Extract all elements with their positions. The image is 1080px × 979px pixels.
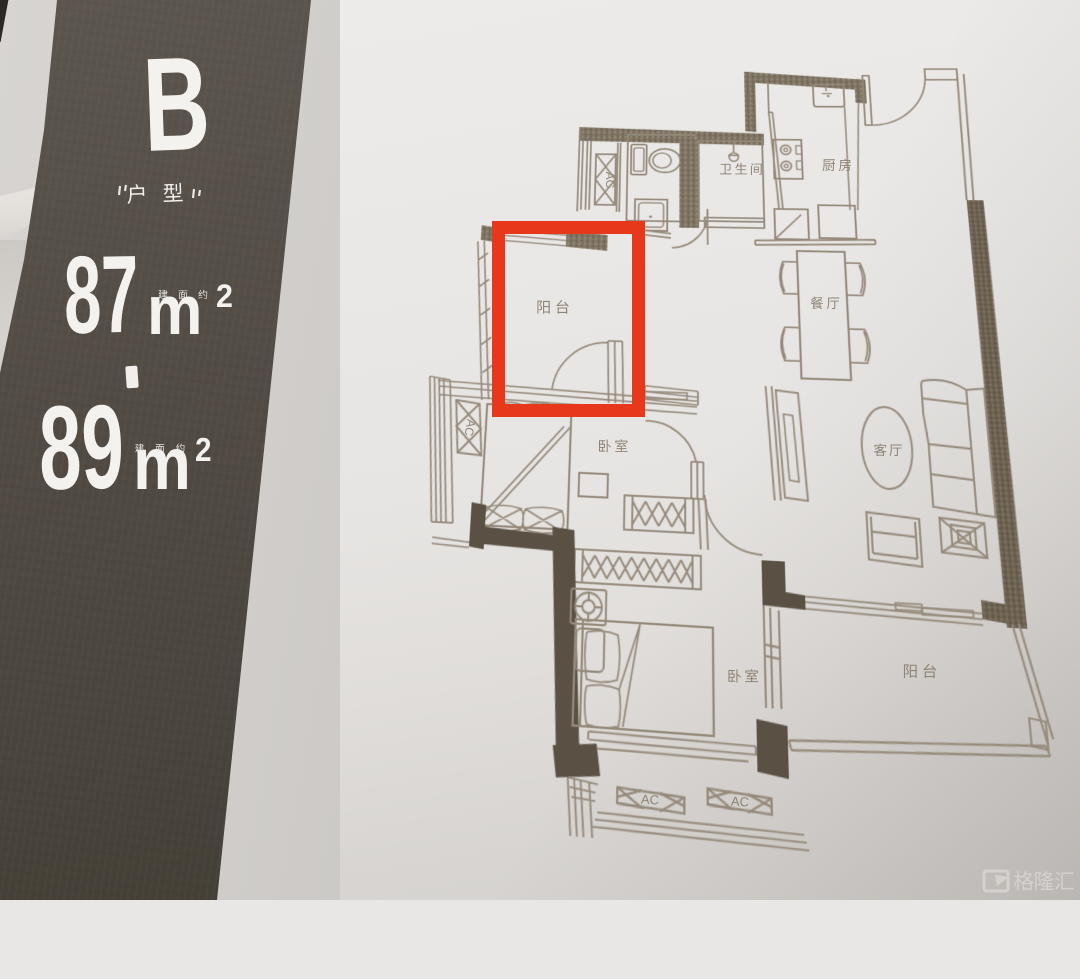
svg-text:AC: AC bbox=[462, 418, 479, 437]
svg-text:AC: AC bbox=[731, 794, 750, 810]
svg-text:AC: AC bbox=[603, 172, 617, 189]
svg-text:AC: AC bbox=[641, 792, 660, 808]
